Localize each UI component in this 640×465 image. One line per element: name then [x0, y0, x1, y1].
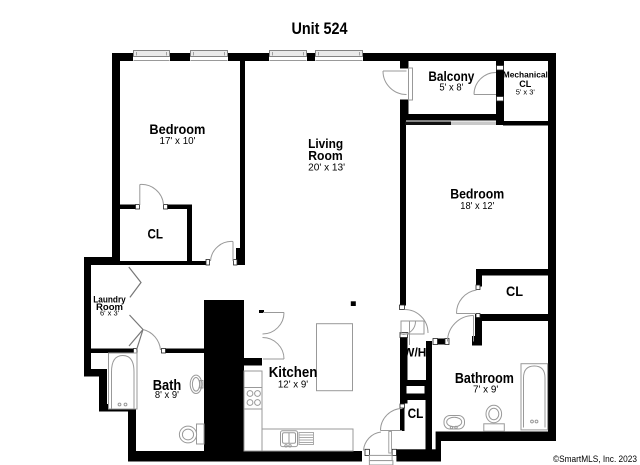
svg-text:W/H: W/H [403, 345, 426, 359]
svg-text:CL: CL [506, 283, 523, 299]
svg-text:CL: CL [408, 405, 424, 421]
svg-text:CL: CL [147, 226, 163, 242]
svg-text:5' x 8': 5' x 8' [439, 83, 463, 94]
svg-text:18' x 12': 18' x 12' [460, 200, 494, 212]
svg-text:5' x 3': 5' x 3' [516, 88, 536, 97]
svg-text:7' x 9': 7' x 9' [473, 384, 498, 396]
svg-text:Unit 524: Unit 524 [292, 19, 348, 38]
svg-text:Mechanical: Mechanical [503, 70, 548, 80]
svg-text:6' x 3': 6' x 3' [100, 309, 120, 318]
svg-text:20' x 13': 20' x 13' [308, 162, 345, 174]
svg-text:©SmartMLS, Inc. 2023: ©SmartMLS, Inc. 2023 [553, 454, 637, 465]
svg-text:17' x 10': 17' x 10' [160, 135, 196, 147]
svg-text:12' x 9': 12' x 9' [278, 379, 308, 391]
svg-text:8' x 9': 8' x 9' [155, 389, 179, 401]
